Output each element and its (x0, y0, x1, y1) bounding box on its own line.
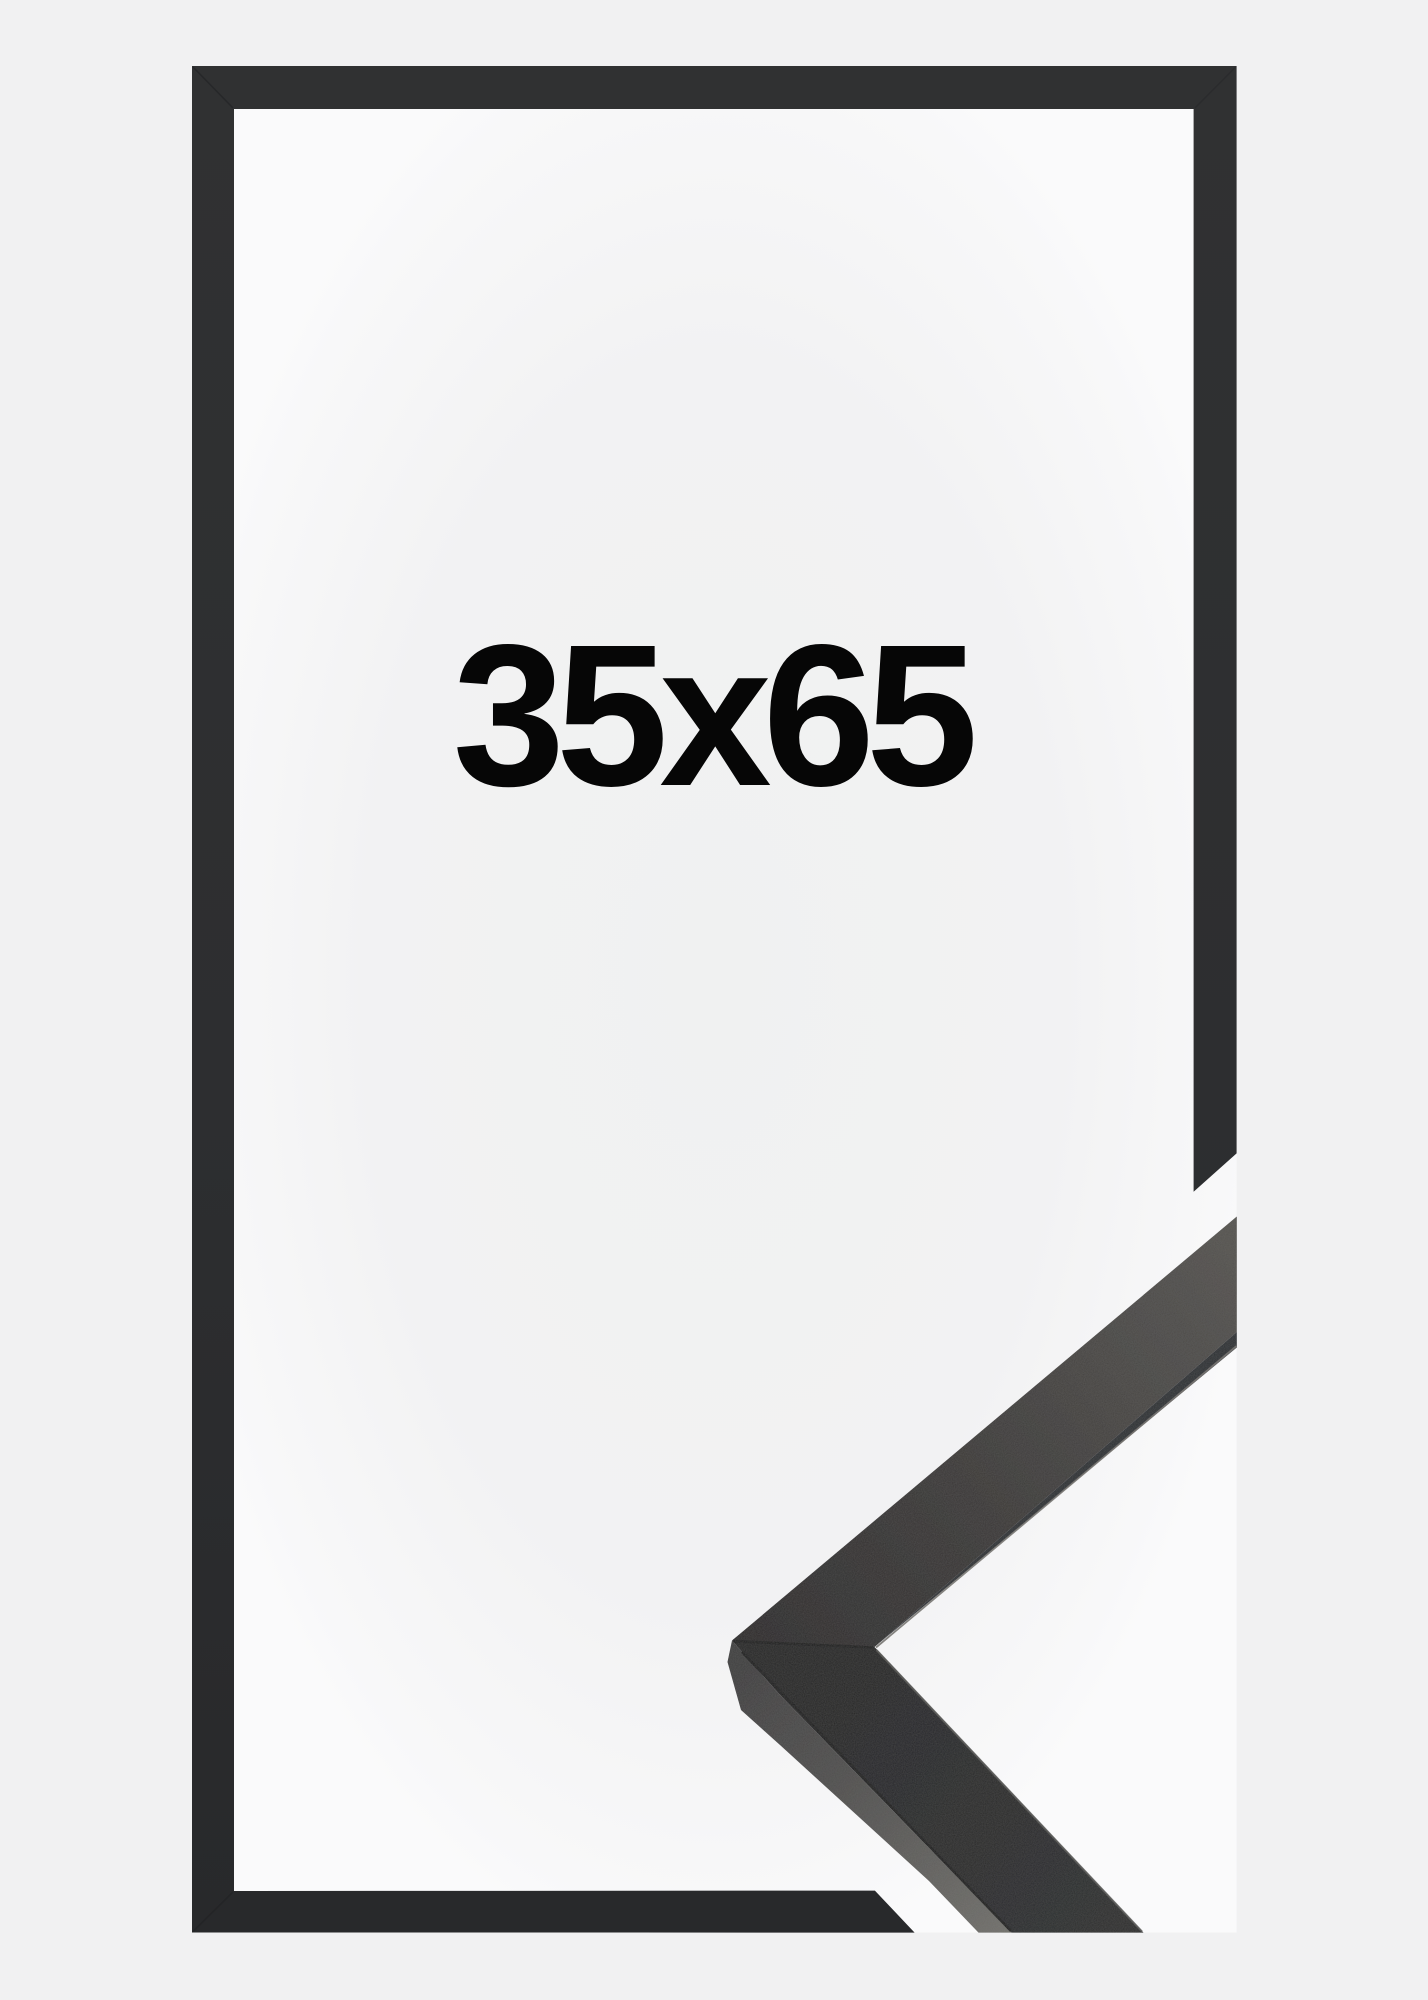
svg-text:35x65: 35x65 (453, 602, 973, 828)
